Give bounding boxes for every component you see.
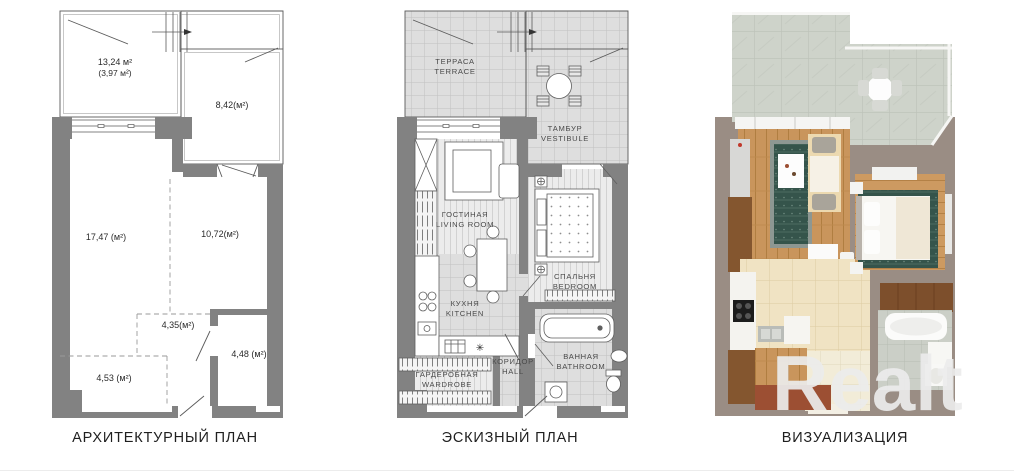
dresser [872, 167, 917, 180]
label-hall-ru: КОРИДОР [492, 357, 534, 366]
window [72, 120, 155, 132]
label-living-en: LIVING ROOM [436, 220, 494, 229]
dresser [545, 290, 615, 301]
caption-architectural-plan: АРХИТЕКТУРНЫЙ ПЛАН [40, 430, 290, 446]
label-vestibule-en: VESTIBULE [541, 134, 589, 143]
coffee-table [778, 154, 804, 188]
fridge-symbol: ✳ [476, 343, 484, 354]
door-swing-vestibule-room [245, 48, 278, 62]
label-terrace-ru: ТЕРРАСА [435, 57, 475, 66]
tv-console [730, 139, 750, 197]
door-swings [180, 164, 258, 416]
label-wardrobe-ru: ГАРДЕРОБНАЯ [416, 370, 479, 379]
wall-openings [82, 326, 280, 418]
window [417, 120, 500, 132]
headboard [856, 196, 862, 260]
oven [445, 340, 465, 353]
label-bathroom-en: BATHROOM [557, 362, 606, 371]
label-bedroom-ru: СПАЛЬНЯ [554, 272, 596, 281]
window-strip [945, 194, 952, 254]
terrace-chair [858, 80, 869, 96]
area-hall: 4,35(м²) [162, 320, 195, 330]
terrace-outline [60, 11, 283, 164]
label-living-ru: ГОСТИНАЯ [442, 210, 489, 219]
terrace-table [867, 76, 893, 102]
dashed-dividers [60, 179, 210, 406]
cooktop [733, 300, 754, 322]
toilet [606, 370, 621, 376]
pillow [864, 202, 880, 226]
caption-visualization: ВИЗУАЛИЗАЦИЯ [700, 430, 990, 446]
wardrobe-cabinet [728, 350, 755, 404]
nightstand [850, 182, 863, 194]
label-kitchen-en: KITCHEN [446, 309, 484, 318]
label-vestibule-ru: ТАМБУР [548, 124, 583, 133]
caption-sketch-plan: ЭСКИЗНЫЙ ПЛАН [385, 430, 635, 446]
walls [52, 117, 283, 418]
area-terrace-reduced: (3,97 м²) [98, 68, 131, 78]
area-bedroom: 10,72(м²) [201, 229, 239, 239]
tv-indicator [738, 143, 742, 147]
dining-table [477, 239, 507, 291]
floor-plans-image: 13,24 м² (3,97 м²) 8,42(м²) 17,47 (м²) 1… [0, 0, 1014, 474]
duvet [896, 197, 930, 259]
terrace-chair [872, 68, 888, 79]
pillow [864, 230, 880, 254]
label-wardrobe-en: WARDROBE [422, 380, 472, 389]
armchair [499, 164, 519, 198]
terrace-chair [891, 80, 902, 96]
area-living: 17,47 (м²) [86, 232, 126, 242]
area-bathroom: 4,48 (м²) [231, 349, 266, 359]
architectural-plan: 13,24 м² (3,97 м²) 8,42(м²) 17,47 (м²) 1… [40, 4, 290, 422]
label-terrace-en: TERRACE [434, 67, 475, 76]
terrace-chair [872, 100, 888, 111]
washbasin [611, 350, 627, 362]
area-vestibule: 8,42(м²) [216, 100, 249, 110]
nightstand [850, 262, 863, 274]
bottom-divider [0, 470, 1014, 471]
label-kitchen-ru: КУХНЯ [451, 299, 480, 308]
label-bedroom-en: BEDROOM [553, 282, 597, 291]
stair-mark [152, 12, 192, 52]
area-wardrobe: 4,53 (м²) [96, 373, 131, 383]
area-terrace: 13,24 м² [98, 57, 132, 67]
label-bathroom-ru: ВАННАЯ [563, 352, 599, 361]
label-hall-en: HALL [502, 367, 524, 376]
realt-watermark: Realt [772, 344, 963, 422]
sketch-plan: ✳ ТЕРРАСА TERRACE ТАМБУР VESTIBULE ГОСТИ… [385, 4, 635, 422]
